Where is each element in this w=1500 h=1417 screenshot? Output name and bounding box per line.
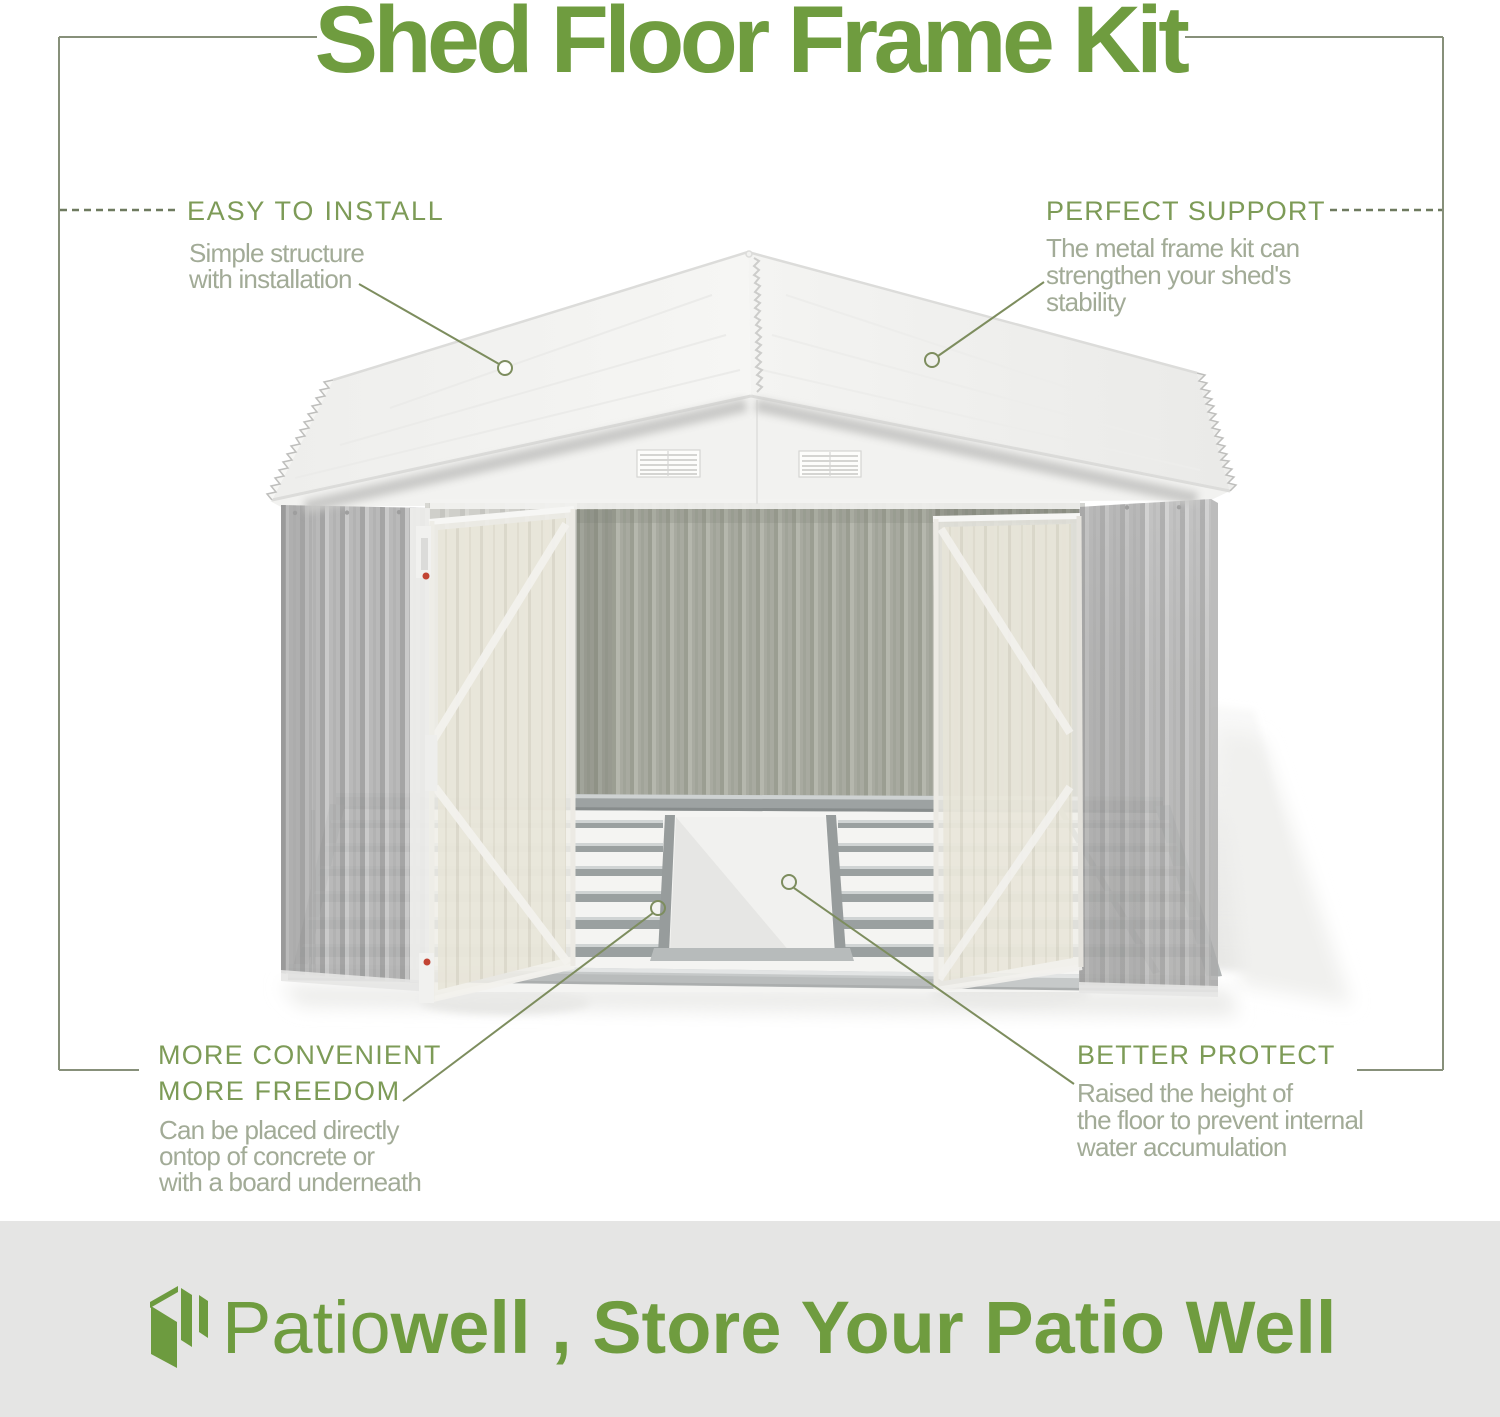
svg-text:Raised the height of: Raised the height of [1077,1078,1294,1108]
svg-text:EASY TO INSTALL: EASY TO INSTALL [187,196,445,226]
svg-text:BETTER PROTECT: BETTER PROTECT [1077,1040,1335,1070]
svg-text:PERFECT SUPPORT: PERFECT SUPPORT [1046,196,1326,226]
svg-text:Shed Floor Frame Kit: Shed Floor Frame Kit [315,0,1190,93]
svg-text:with a board underneath: with a board underneath [158,1167,421,1197]
svg-text:stability: stability [1046,287,1126,317]
svg-text:MORE FREEDOM: MORE FREEDOM [158,1076,401,1106]
svg-text:Patiowell , Store Your Patio W: Patiowell , Store Your Patio Well [222,1286,1336,1369]
svg-text:The metal frame kit can: The metal frame kit can [1046,233,1299,263]
svg-text:water accumulation: water accumulation [1076,1132,1287,1162]
svg-text:MORE CONVENIENT: MORE CONVENIENT [158,1040,442,1070]
svg-text:with installation: with installation [188,264,352,294]
svg-text:the floor to prevent internal: the floor to prevent internal [1077,1105,1363,1135]
svg-text:strengthen your shed's: strengthen your shed's [1046,260,1291,290]
